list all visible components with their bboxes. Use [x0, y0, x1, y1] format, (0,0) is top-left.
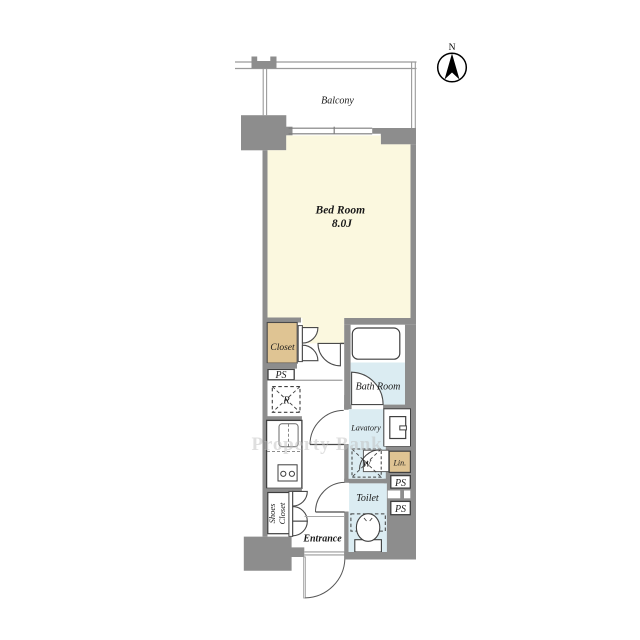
- svg-text:Balcony: Balcony: [321, 96, 354, 107]
- svg-text:Entrance: Entrance: [302, 534, 342, 545]
- svg-text:Property Bank: Property Bank: [252, 434, 383, 455]
- svg-text:Lin.: Lin.: [392, 459, 406, 468]
- svg-text:Bath Room: Bath Room: [356, 382, 401, 393]
- svg-text:Bed Room: Bed Room: [315, 205, 366, 217]
- svg-text:8.0J: 8.0J: [332, 218, 353, 230]
- svg-text:Toilet: Toilet: [356, 493, 379, 504]
- svg-text:PS: PS: [274, 370, 286, 381]
- svg-text:PS: PS: [394, 504, 406, 515]
- svg-text:N: N: [449, 43, 456, 53]
- svg-text:PS: PS: [394, 478, 406, 489]
- svg-text:R: R: [282, 396, 290, 407]
- svg-text:Closet: Closet: [277, 502, 287, 524]
- svg-text:W: W: [362, 459, 372, 470]
- svg-text:Closet: Closet: [270, 343, 295, 353]
- svg-text:Shoes: Shoes: [267, 503, 277, 524]
- svg-text:Lavatory: Lavatory: [350, 424, 381, 433]
